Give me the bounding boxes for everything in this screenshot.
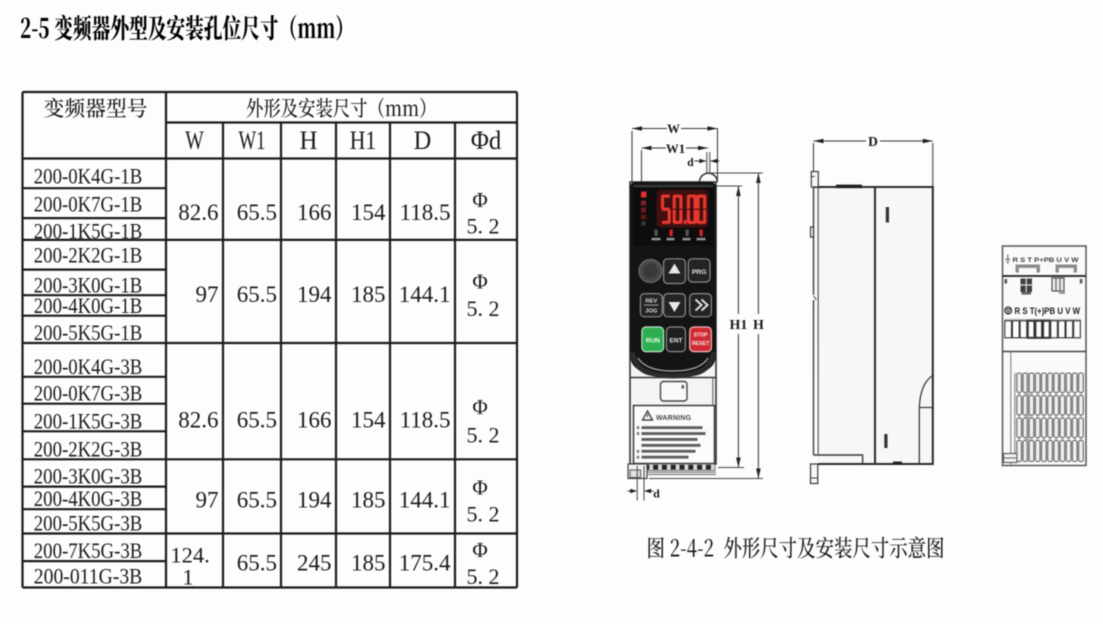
svg-text:194: 194 [297,488,332,513]
svg-text:1: 1 [182,565,193,590]
svg-text:WARNING: WARNING [656,415,692,422]
svg-text:118.5: 118.5 [400,408,451,433]
svg-text:d: d [653,487,660,501]
svg-text:65.5: 65.5 [237,408,277,433]
svg-text:Φd: Φd [471,126,502,155]
svg-text:ENT: ENT [670,338,683,345]
svg-text:245: 245 [297,550,332,575]
svg-text:5. 2: 5. 2 [467,564,500,589]
svg-text:W: W [667,122,680,136]
svg-text:Φ: Φ [472,270,487,294]
svg-text:200-5K5G-1B: 200-5K5G-1B [34,320,143,345]
svg-text:W1: W1 [239,126,266,155]
svg-text:65.5: 65.5 [237,488,277,513]
svg-text:200-5K5G-3B: 200-5K5G-3B [34,511,143,536]
svg-text:154: 154 [351,408,386,433]
svg-text:d: d [687,157,694,169]
svg-text:200-011G-3B: 200-011G-3B [34,564,143,589]
svg-text:RUN: RUN [646,338,660,345]
svg-text:D: D [868,134,878,149]
svg-text:185: 185 [351,488,386,513]
svg-text:Φ: Φ [472,395,487,419]
svg-text:154: 154 [351,200,386,225]
svg-text:65.5: 65.5 [237,550,277,575]
svg-text:200-0K4G-3B: 200-0K4G-3B [34,354,143,379]
svg-text:H: H [753,318,764,333]
svg-text:Φ: Φ [472,188,487,212]
svg-text:5. 2: 5. 2 [467,296,500,321]
svg-text:Φ: Φ [472,538,487,562]
svg-text:200-1K5G-1B: 200-1K5G-1B [34,219,143,244]
svg-text:97: 97 [196,488,219,513]
svg-text:STOP: STOP [694,333,709,339]
svg-text:166: 166 [297,200,332,225]
svg-text:200-0K7G-3B: 200-0K7G-3B [34,381,143,406]
svg-text:D: D [414,126,432,155]
svg-text:200-2K2G-3B: 200-2K2G-3B [34,436,143,461]
svg-text:5. 2: 5. 2 [467,214,500,239]
svg-text:5. 2: 5. 2 [467,502,500,527]
svg-text:200-0K4G-1B: 200-0K4G-1B [34,163,143,188]
svg-text:H1: H1 [350,126,377,155]
svg-text:185: 185 [351,282,386,307]
svg-text:194: 194 [297,282,332,307]
svg-text:175.4: 175.4 [399,550,451,575]
svg-text:200-4K0G-3B: 200-4K0G-3B [34,486,143,511]
svg-text:5. 2: 5. 2 [467,423,500,448]
svg-text:82.6: 82.6 [178,200,218,225]
svg-text:JOG: JOG [645,309,658,315]
svg-text:200-1K5G-3B: 200-1K5G-3B [34,408,143,433]
svg-text:65.5: 65.5 [237,282,277,307]
svg-text:144.1: 144.1 [399,282,451,307]
svg-text:200-3K0G-3B: 200-3K0G-3B [34,464,143,489]
svg-text:82.6: 82.6 [178,408,218,433]
svg-text:RESET: RESET [692,341,710,347]
svg-text:H: H [300,126,318,155]
svg-text:REV: REV [645,299,657,305]
svg-text:200-0K7G-1B: 200-0K7G-1B [34,192,143,217]
svg-text:185: 185 [351,550,386,575]
svg-text:W1: W1 [666,142,685,156]
svg-text:166: 166 [297,408,332,433]
svg-text:200-4K0G-1B: 200-4K0G-1B [34,293,143,318]
svg-text:PRG: PRG [692,269,707,276]
svg-text:65.5: 65.5 [237,200,277,225]
svg-text:200-7K5G-3B: 200-7K5G-3B [34,538,143,563]
svg-text:118.5: 118.5 [400,200,451,225]
svg-text:Φ: Φ [472,476,487,500]
svg-text:W: W [185,126,204,155]
svg-text:200-2K2G-1B: 200-2K2G-1B [34,242,143,267]
svg-text:H1: H1 [730,318,748,333]
svg-text:97: 97 [196,282,219,307]
svg-text:R S T(+)PB U V W: R S T(+)PB U V W [1015,306,1081,317]
svg-text:144.1: 144.1 [399,488,451,513]
svg-text:R S T P+PB U V W: R S T P+PB U V W [1013,258,1079,264]
